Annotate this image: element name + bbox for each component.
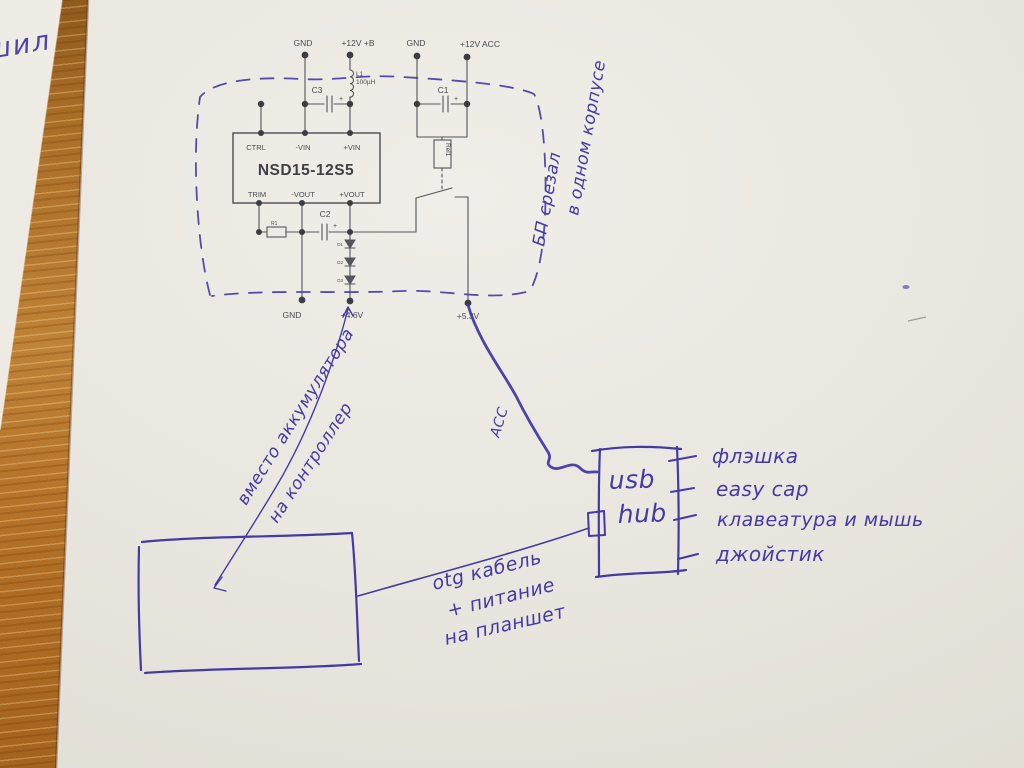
trim-r1-wires xyxy=(259,203,302,232)
label-d3: D3 xyxy=(337,278,343,283)
hub-label-usb: usb xyxy=(608,464,655,495)
inductor-l1 xyxy=(350,70,354,97)
acc-label: АСС xyxy=(487,405,512,440)
label-r1: R1 xyxy=(271,221,278,227)
label-5v3: +5.3V xyxy=(457,311,480,321)
label-c2: C2 xyxy=(320,209,331,219)
pin-vin-pos: +VIN xyxy=(344,143,361,152)
port-label-flash: флэшка xyxy=(712,444,799,468)
label-c1: C1 xyxy=(438,85,449,95)
psu-enclosure-dashed-border xyxy=(196,76,546,296)
label-d2: D2 xyxy=(337,260,343,265)
psu-note-line2: в одном корпусе xyxy=(563,59,610,217)
module-name: NSD15-12S5 xyxy=(258,162,354,179)
label-c2-plus: + xyxy=(333,223,337,230)
label-12v-acc: +12V ACC xyxy=(460,39,500,49)
pin-vout-pos: +VOUT xyxy=(339,190,365,199)
pin-vin-neg: -VIN xyxy=(296,143,311,152)
pin-ctrl: CTRL xyxy=(246,143,266,152)
label-gnd-out: GND xyxy=(283,310,302,320)
hub-label-hub: hub xyxy=(617,498,667,529)
label-rel1: Rel1 xyxy=(444,143,451,157)
port-label-easycap: easy cap xyxy=(716,477,809,501)
tablet-box xyxy=(139,533,361,673)
port-label-keyboard-mouse: клавеатура и мышь xyxy=(717,509,924,531)
label-c3: C3 xyxy=(312,85,323,95)
hub-port-ticks xyxy=(669,456,698,559)
label-12v-b: +12V +B xyxy=(341,38,374,48)
paper-edge-shadows xyxy=(0,0,88,768)
label-gnd1: GND xyxy=(294,38,313,48)
photo-of-schematic: шил xyxy=(0,0,1024,768)
otg-connector-square xyxy=(588,511,605,536)
acc-wire xyxy=(468,305,597,472)
resistor-r1 xyxy=(267,227,286,237)
pin-vout-neg: -VOUT xyxy=(291,190,315,199)
psu-note-line1: БП срезал xyxy=(529,151,565,248)
capacitor-c3 xyxy=(305,96,350,112)
label-l1-value: 100µH xyxy=(356,79,376,86)
label-d1: D1 xyxy=(337,242,343,247)
wire-acc-rails xyxy=(417,56,467,137)
diode-chain xyxy=(345,232,355,301)
ink-smudges xyxy=(903,285,927,321)
port-label-joystick: джойстик xyxy=(715,542,825,566)
pin-trim: TRIM xyxy=(248,190,266,199)
label-c3-plus: + xyxy=(339,96,343,103)
label-c1-plus: + xyxy=(454,96,458,103)
label-gnd2: GND xyxy=(407,38,426,48)
switch-and-output-wire xyxy=(350,188,468,303)
capacitor-c1 xyxy=(417,96,467,112)
capacitor-c2 xyxy=(302,224,350,240)
schematic-drawing: GND +12V +B GND +12V ACC GND +4.6V +5.3V… xyxy=(0,0,1024,768)
